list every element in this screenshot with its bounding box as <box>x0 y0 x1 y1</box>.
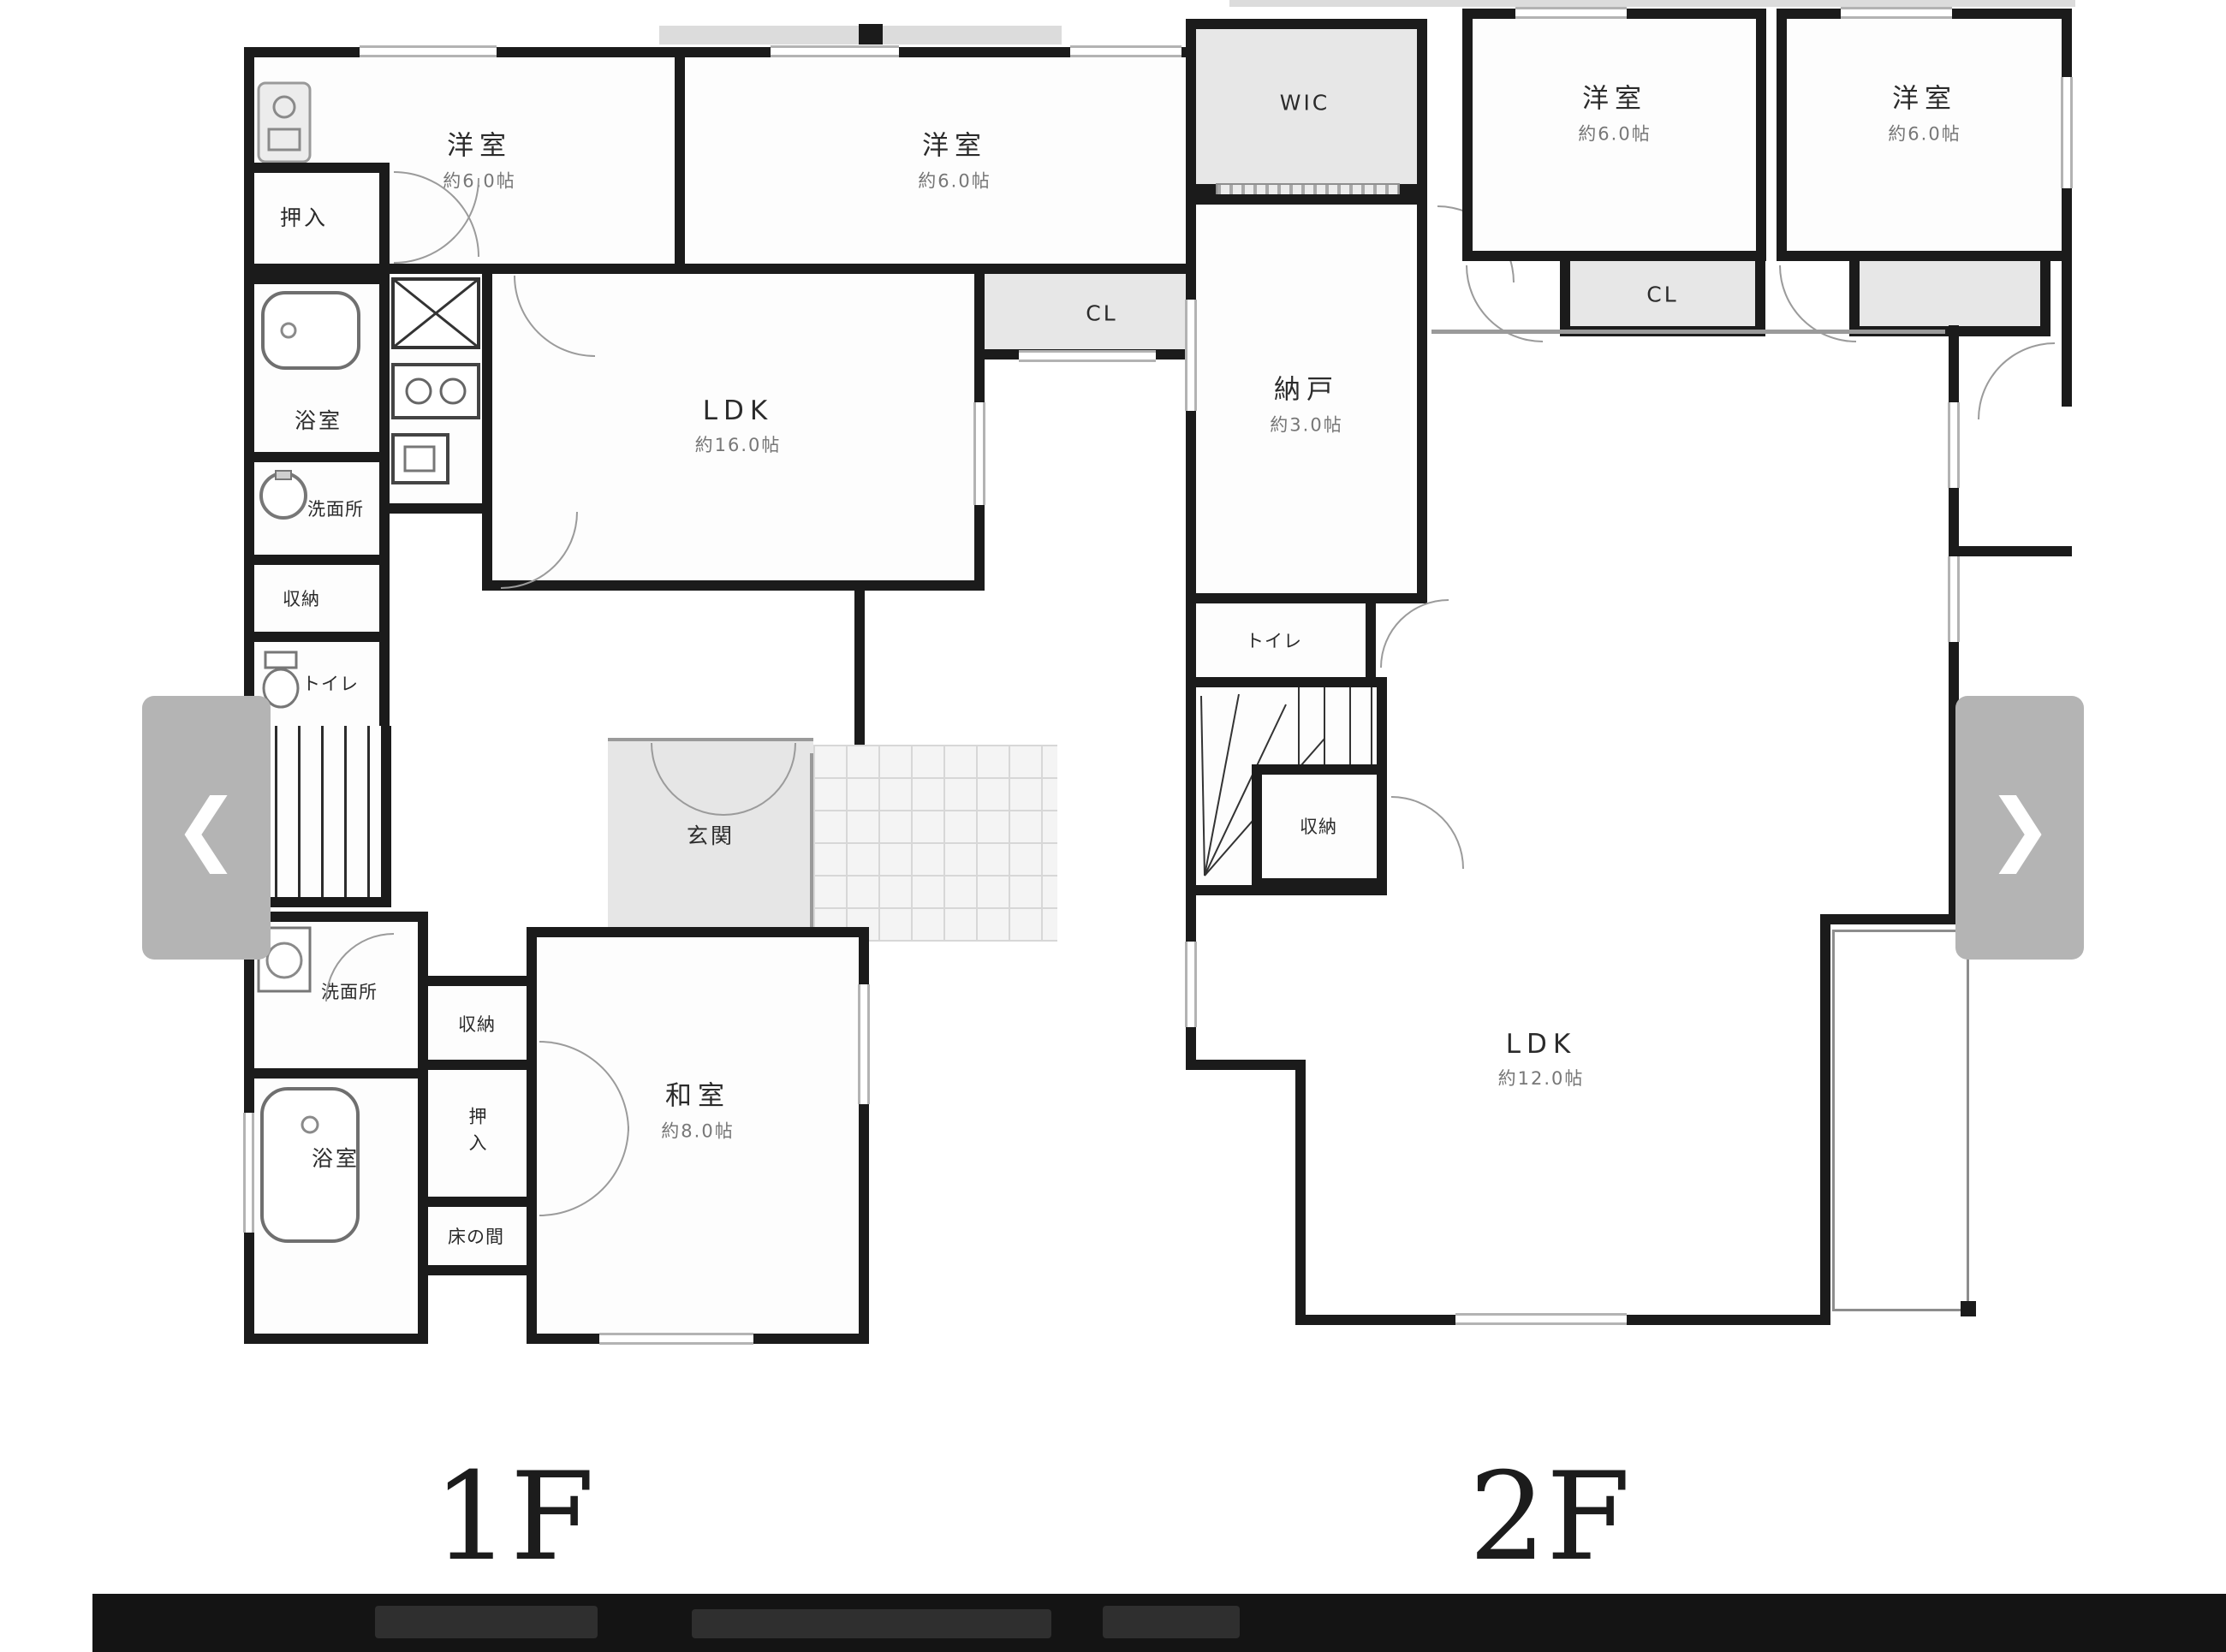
window <box>1841 7 1952 19</box>
wall <box>1295 1060 1306 1325</box>
window <box>1948 556 1960 642</box>
wall <box>1820 914 1830 1325</box>
carousel-next-button[interactable]: ❯ <box>1955 696 2084 960</box>
wall <box>2062 261 2072 407</box>
wall <box>1186 1060 1306 1070</box>
room-label-1f-bath-2: 浴室 <box>312 1142 360 1173</box>
room-label-1f-toilet: トイレ <box>302 670 359 696</box>
kitchen-fixtures-icon <box>390 276 482 505</box>
floor-title-1f: 1F <box>433 1447 595 1588</box>
entrance-porch <box>813 745 1057 942</box>
gutter-tick <box>859 24 883 45</box>
wall <box>854 580 865 752</box>
bottom-caption-bar <box>92 1594 2226 1652</box>
wall <box>379 503 492 514</box>
window <box>858 984 870 1104</box>
window <box>1185 300 1197 411</box>
window <box>1948 402 1960 488</box>
balcony-rail <box>1832 930 1969 1311</box>
cabinet-icon <box>257 81 312 163</box>
roof-gutter-strip <box>1229 0 2075 7</box>
blurred-text <box>1103 1606 1240 1638</box>
window <box>1070 45 1181 57</box>
closet-2f-closet <box>1849 251 2050 336</box>
door-arc <box>1391 796 1464 869</box>
room-label-1f-washitsu: 和室約8.0帖 <box>661 1074 734 1144</box>
window <box>1185 942 1197 1027</box>
closet-label-2f-wic: WIC <box>1280 91 1330 116</box>
room-label-2f-toilet: トイレ <box>1246 627 1302 653</box>
chevron-left-icon: ❮ <box>173 782 239 874</box>
window <box>599 1333 753 1345</box>
closet-label-1f-storage-1: 収納 <box>283 585 320 611</box>
closet-label-1f-oshiire-1: 押入 <box>280 201 328 232</box>
entrance-frame-line <box>608 738 813 741</box>
room-label-2f-ldk: LDK約12.0帖 <box>1498 1029 1585 1090</box>
rail-post <box>1961 1301 1976 1316</box>
window <box>360 45 497 57</box>
closet-label-1f-oshiire-2: 押入 <box>464 1107 490 1160</box>
sink-icon <box>257 469 310 522</box>
room-label-2f-storage-room: 納戸約3.0帖 <box>1270 368 1342 437</box>
window <box>1515 7 1627 19</box>
room-label-1f-bath-1: 浴室 <box>295 404 342 435</box>
bathtub-icon <box>259 288 362 373</box>
window <box>1455 1313 1627 1325</box>
room-label-1f-washroom-1: 洗面所 <box>307 496 364 521</box>
chevron-right-icon: ❯ <box>1986 782 2052 874</box>
wall <box>1959 546 2072 556</box>
room-label-1f-entrance: 玄関 <box>687 819 735 850</box>
carousel-prev-button[interactable]: ❮ <box>142 696 271 960</box>
floor-transition-line <box>1431 330 1945 334</box>
area-label-1f-tokonoma: 床の間 <box>448 1223 504 1249</box>
door-arc <box>1978 342 2055 419</box>
blurred-text <box>692 1609 1051 1638</box>
window <box>243 1113 254 1233</box>
room-label-1f-bedroom-2: 洋室約6.0帖 <box>918 124 991 193</box>
room-label-1f-ldk: LDK約16.0帖 <box>695 395 782 457</box>
floorplan-image: 洋室約6.0帖 洋室約6.0帖 押入 CL LDK約16.0帖 <box>0 0 2226 1652</box>
door-arc <box>1380 599 1449 668</box>
room-label-2f-bedroom-1: 洋室約6.0帖 <box>1578 77 1651 146</box>
floor-title-2f: 2F <box>1469 1447 1631 1588</box>
window <box>2061 77 2073 188</box>
window <box>1019 350 1156 362</box>
blurred-text <box>375 1606 598 1638</box>
closet-label-1f-storage-2: 収納 <box>458 1011 496 1037</box>
closet-label-1f-cl: CL <box>1086 301 1117 326</box>
room-label-2f-bedroom-2: 洋室約6.0帖 <box>1888 77 1961 146</box>
closet-label-2f-cl: CL <box>1646 282 1678 307</box>
window <box>771 45 899 57</box>
window <box>973 402 985 505</box>
closet-label-2f-storage: 収納 <box>1300 813 1337 839</box>
wall <box>1820 914 1959 924</box>
